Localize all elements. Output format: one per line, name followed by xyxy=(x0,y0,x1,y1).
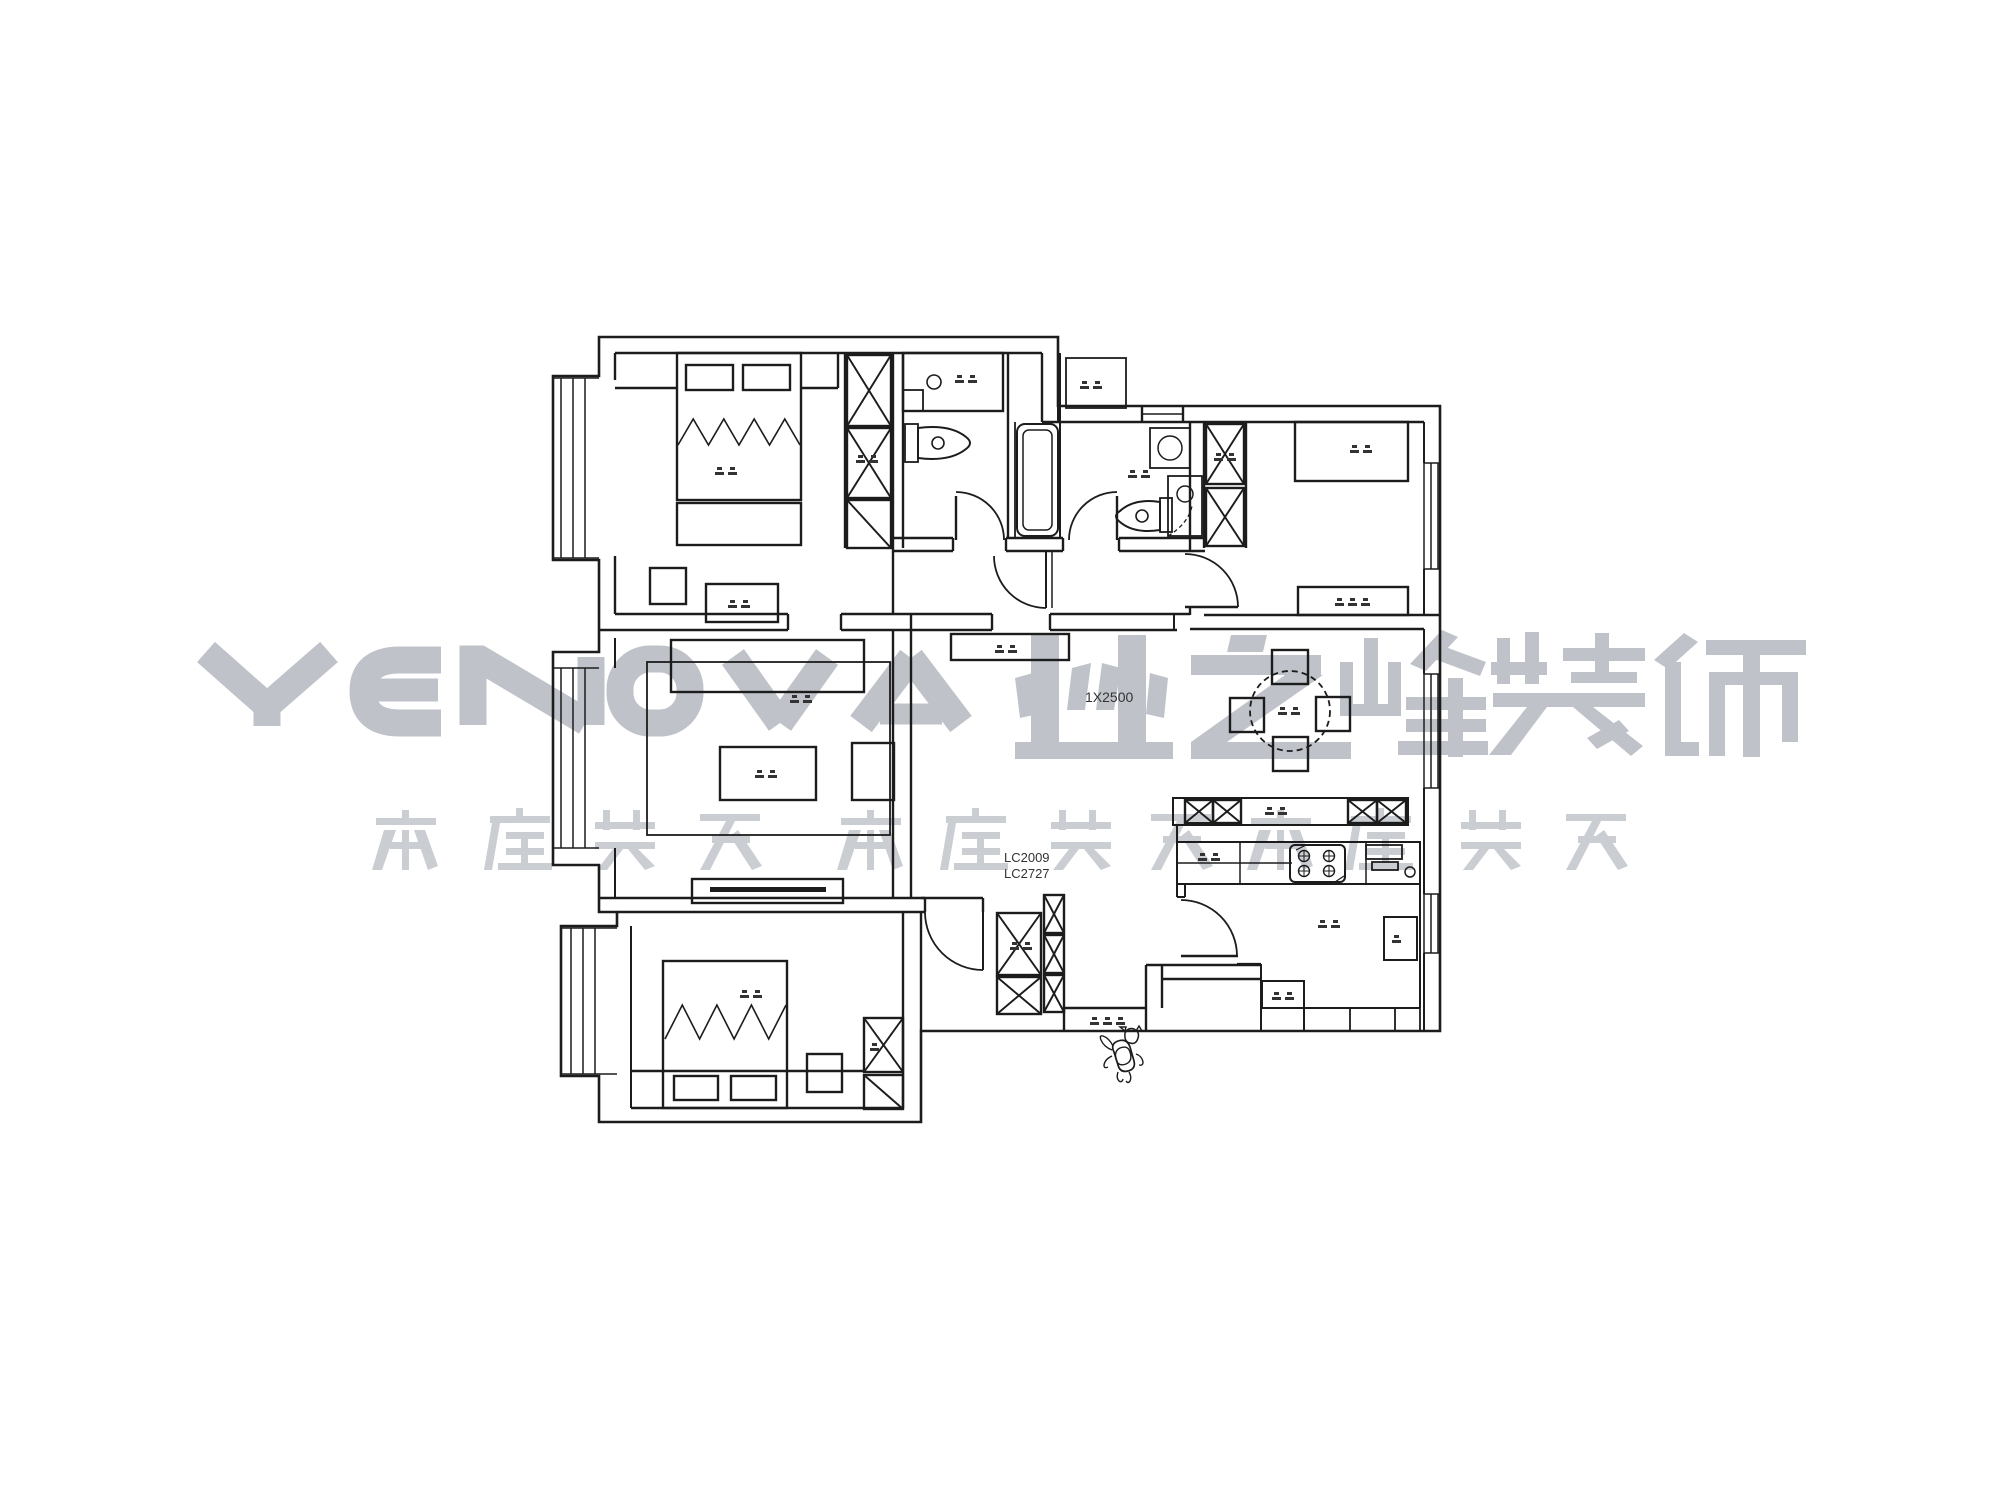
svg-text:1X2500: 1X2500 xyxy=(1085,689,1133,705)
svg-text:LC2009: LC2009 xyxy=(1004,850,1050,865)
svg-text:LC2727: LC2727 xyxy=(1004,866,1050,881)
